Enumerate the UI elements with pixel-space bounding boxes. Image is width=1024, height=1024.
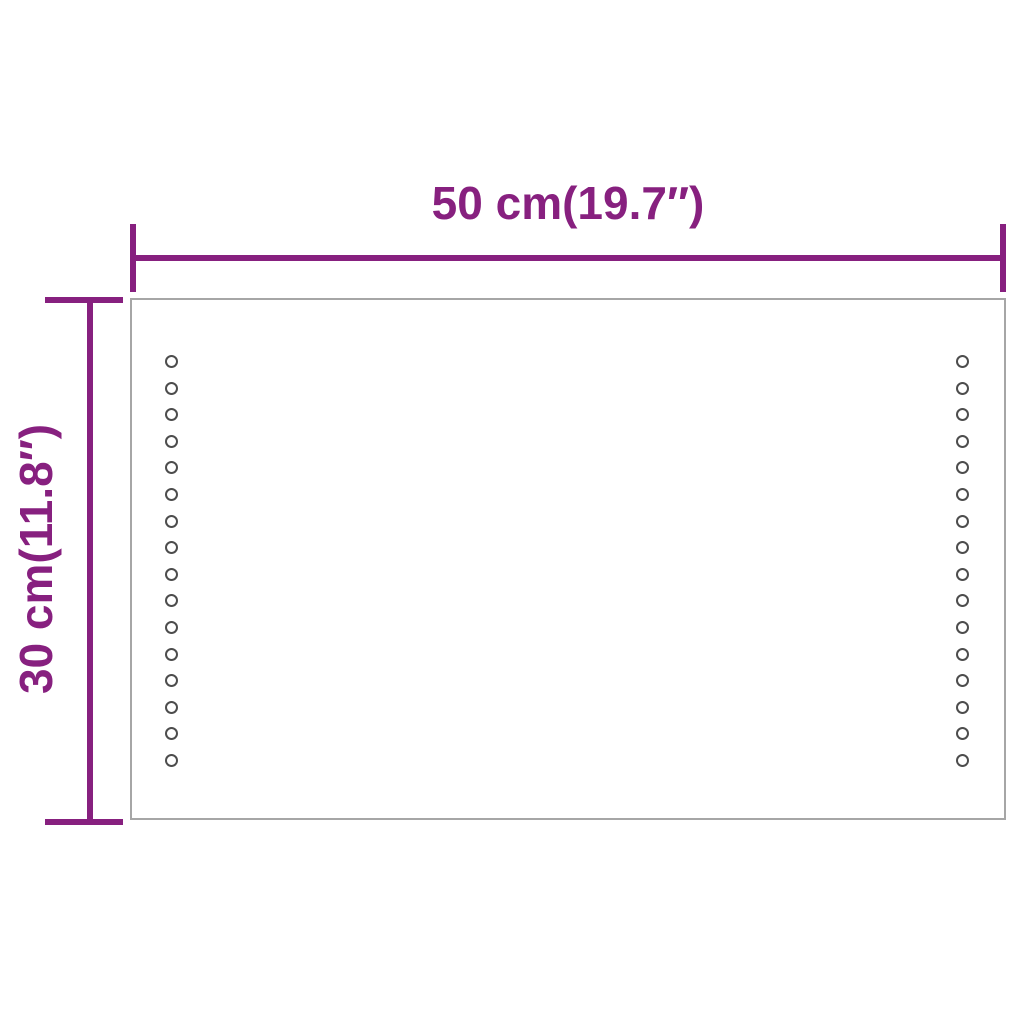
led-dot (165, 541, 178, 554)
led-dot (165, 701, 178, 714)
led-dot (956, 435, 969, 448)
mirror-panel (130, 298, 1006, 820)
width-dimension-right-tick (1000, 224, 1006, 292)
led-dot (956, 621, 969, 634)
led-dot (165, 568, 178, 581)
width-dimension-line (130, 255, 1006, 261)
led-dot (165, 754, 178, 767)
led-dot (956, 488, 969, 501)
led-dot (165, 515, 178, 528)
led-dot (956, 754, 969, 767)
led-dot-column-right (956, 355, 969, 767)
led-dot (165, 461, 178, 474)
led-dot (956, 461, 969, 474)
dimension-diagram: 50 cm(19.7″) 30 cm(11.8″) (0, 0, 1024, 1024)
led-dot (165, 435, 178, 448)
led-dot (956, 674, 969, 687)
led-dot (165, 355, 178, 368)
led-dot (165, 382, 178, 395)
width-dimension-left-tick (130, 224, 136, 292)
height-dimension-label: 30 cm(11.8″) (9, 424, 63, 694)
led-dot (956, 648, 969, 661)
led-dot (165, 674, 178, 687)
height-dimension-line (87, 300, 93, 822)
width-dimension-label: 50 cm(19.7″) (130, 176, 1006, 230)
led-dot (956, 515, 969, 528)
led-dot (165, 488, 178, 501)
led-dot (956, 594, 969, 607)
led-dot (165, 594, 178, 607)
led-dot (956, 727, 969, 740)
led-dot (165, 727, 178, 740)
led-dot (956, 701, 969, 714)
led-dot (165, 408, 178, 421)
led-dot (956, 382, 969, 395)
led-dot (165, 621, 178, 634)
led-dot (165, 648, 178, 661)
led-dot-column-left (165, 355, 178, 767)
led-dot (956, 355, 969, 368)
height-dimension-bottom-tick (45, 819, 123, 825)
height-dimension-top-tick (45, 297, 123, 303)
led-dot (956, 408, 969, 421)
led-dot (956, 541, 969, 554)
led-dot (956, 568, 969, 581)
